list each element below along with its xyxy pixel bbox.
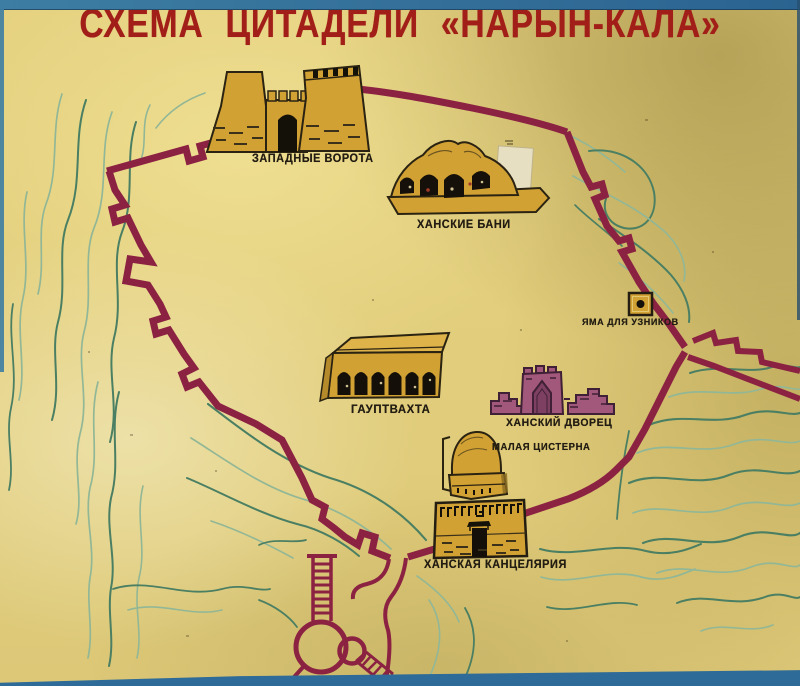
citadel-map-poster: СХЕМА ЦИТАДЕЛИ «НАРЫН-КАЛА» ЗАПАДНЫЕ ВОР… <box>0 0 800 686</box>
photo-edge-top <box>0 0 800 10</box>
passage-long <box>385 558 406 686</box>
wall-top <box>348 88 567 132</box>
stairs-ladder <box>313 564 331 613</box>
label-guardhouse: ГАУПТВАХТА <box>351 402 430 416</box>
map-drawing <box>0 0 800 686</box>
label-khan-palace: ХАНСКИЙ ДВОРЕЦ <box>506 417 612 429</box>
label-khan-baths: ХАНСКИЕ БАНИ <box>417 219 511 231</box>
label-western-gate: ЗАПАДНЫЕ ВОРОТА <box>252 153 374 165</box>
khan-palace-illustration <box>491 366 614 414</box>
western-gate-illustration <box>206 66 370 152</box>
label-khan-chancellery: ХАНСКАЯ КАНЦЕЛЯРИЯ <box>424 559 567 571</box>
wall-east <box>567 132 685 347</box>
passage-hook <box>353 559 389 599</box>
south-stairs-and-towers <box>286 556 406 686</box>
photo-edge-left <box>0 0 4 372</box>
khan-chancellery-illustration <box>434 500 527 558</box>
khan-baths-illustration <box>388 141 549 214</box>
guardhouse-illustration <box>320 333 449 401</box>
label-small-cistern: МАЛАЯ ЦИСТЕРНА <box>492 442 590 453</box>
label-prisoner-pit: ЯМА ДЛЯ УЗНИКОВ <box>582 317 679 328</box>
prisoner-pit-icon <box>629 293 652 315</box>
